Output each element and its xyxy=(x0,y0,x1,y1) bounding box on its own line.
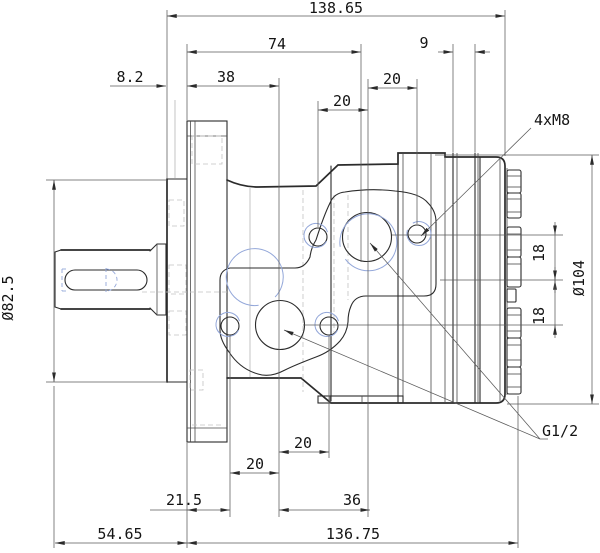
dim-dia-82-5: Ø82.5 xyxy=(0,180,54,382)
callout-4xM8: 4xM8 xyxy=(421,111,570,236)
shaft-collar xyxy=(150,244,166,315)
dim-label: 20 xyxy=(383,70,401,88)
bolt-head xyxy=(507,308,521,338)
bolt-head xyxy=(507,227,521,257)
dim-label: 20 xyxy=(294,434,312,452)
bolt-head xyxy=(507,170,521,193)
dim-20-top-left: 20 xyxy=(318,92,368,110)
output-shaft xyxy=(55,244,166,315)
dim-label: 36 xyxy=(343,491,361,509)
dim-label: 138.65 xyxy=(309,0,363,17)
bolt-head xyxy=(507,193,521,218)
technical-drawing: 138.65 74 9 8.2 38 20 20 20 20 21.5 xyxy=(0,0,600,553)
dim-74: 74 xyxy=(187,35,361,53)
dim-20-bottom-lower: 20 xyxy=(230,455,279,473)
rear-bolt-heads xyxy=(507,168,521,395)
dim-9: 9 xyxy=(419,34,490,52)
bolt-hole xyxy=(221,317,239,335)
dim-18-lower: 18 xyxy=(530,267,555,338)
dim-label: 74 xyxy=(268,35,286,53)
dim-label: Ø82.5 xyxy=(0,275,17,320)
bolt-head xyxy=(507,367,521,394)
drain-plug xyxy=(507,289,516,302)
dim-label: Ø104 xyxy=(570,260,588,296)
dim-label: 18 xyxy=(530,244,548,262)
dim-18-upper: 18 xyxy=(530,222,555,293)
dim-36: 36 xyxy=(279,491,370,510)
dim-38: 38 xyxy=(187,68,279,86)
drawing-canvas: 138.65 74 9 8.2 38 20 20 20 20 21.5 xyxy=(0,0,600,553)
mounting-flange xyxy=(142,121,228,442)
dim-20-bottom-upper: 20 xyxy=(279,434,329,452)
bolt-head xyxy=(507,257,521,287)
dim-overall-138-65: 138.65 xyxy=(167,0,505,17)
dim-label: 20 xyxy=(246,455,264,473)
port-callout-label: G1/2 xyxy=(542,422,578,440)
port-hole-bottom xyxy=(256,301,305,350)
dim-label: 8.2 xyxy=(116,68,143,86)
thread-callout-label: 4xM8 xyxy=(534,111,570,129)
dim-21-5: 21.5 xyxy=(150,491,230,510)
dim-label: 136.75 xyxy=(326,525,380,543)
bolt-hole xyxy=(320,317,338,335)
dim-label: 20 xyxy=(333,92,351,110)
bolt-head xyxy=(507,338,521,367)
dim-label: 38 xyxy=(217,68,235,86)
bolt-hole xyxy=(309,228,327,246)
dim-dia-104: Ø104 xyxy=(570,155,592,404)
motor-housing xyxy=(227,153,505,403)
keyway-slot xyxy=(65,270,147,290)
dim-label: 18 xyxy=(530,307,548,325)
dim-20-top-right: 20 xyxy=(368,70,417,88)
dim-label: 21.5 xyxy=(166,491,202,509)
dim-label: 9 xyxy=(419,34,428,52)
dim-136-75: 136.75 xyxy=(187,525,518,543)
dim-8-2: 8.2 xyxy=(110,68,166,86)
extension-lines xyxy=(46,10,599,548)
port-hole-top xyxy=(343,213,392,262)
dim-label: 54.65 xyxy=(97,525,142,543)
dim-54-65: 54.65 xyxy=(55,525,187,543)
